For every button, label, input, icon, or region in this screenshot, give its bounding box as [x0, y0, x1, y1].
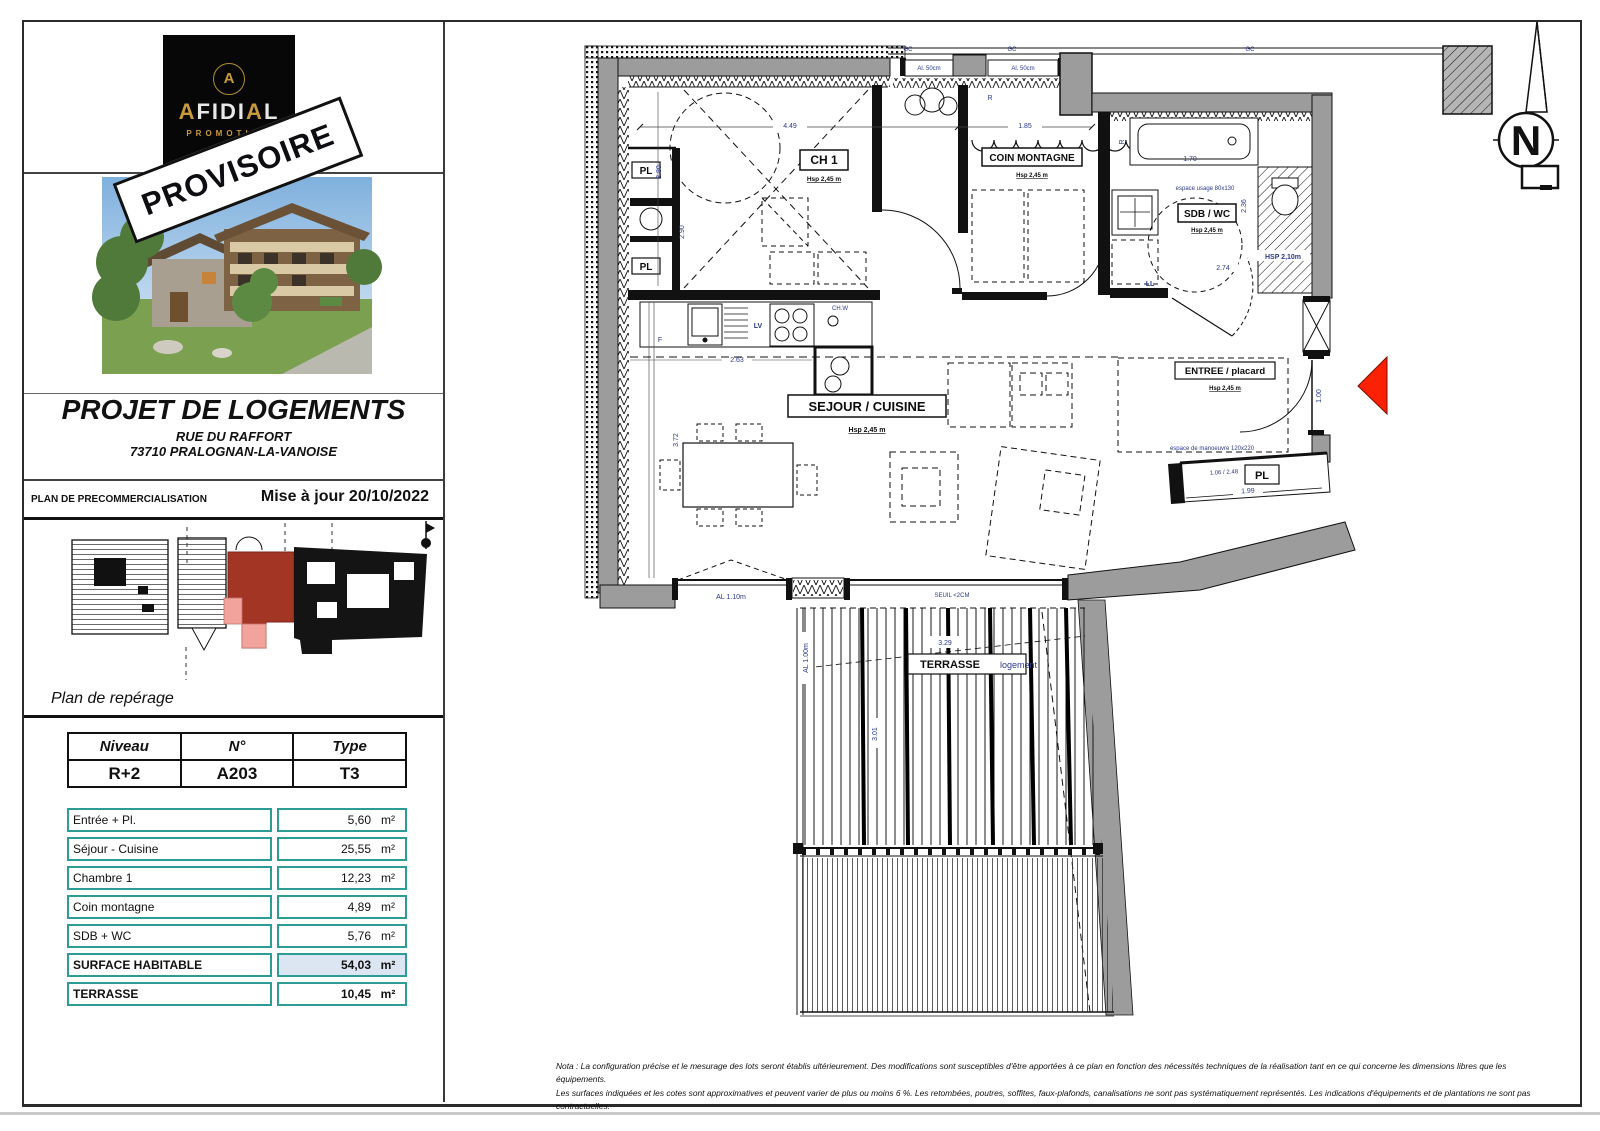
shower-sloped-zone: HSP 2,10m: [1256, 167, 1312, 293]
terrasse-sub-label: logement: [1000, 660, 1038, 670]
dim-280: 2.80: [656, 165, 663, 179]
fridge-label: F: [658, 337, 662, 344]
row-value: 5,76m²: [277, 924, 407, 948]
row-label: Chambre 1: [67, 866, 272, 890]
unit-table-header-row: Niveau N° Type: [68, 733, 406, 760]
terrace: 3.29 TERRASSE logement 3.01 AL 1.00m: [793, 608, 1114, 1016]
allege-110: AL 1.10m: [716, 594, 746, 601]
table-row: Chambre 1 12,23m²: [67, 866, 407, 890]
row-label: Entrée + Pl.: [67, 808, 272, 832]
entry-arrow-icon: [1358, 357, 1387, 414]
val-type: T3: [293, 760, 406, 787]
room-label-terrasse: TERRASSE: [920, 659, 980, 671]
disclaimer-line-2: Les surfaces indiquées et les cotes sont…: [556, 1087, 1532, 1114]
disclaimer: Nota : La configuration précise et le me…: [556, 1060, 1532, 1114]
room-label-pl: PL: [1255, 470, 1269, 482]
terrace-label: TERRASSE logement: [908, 654, 1038, 674]
photo-rock: [212, 348, 232, 358]
row-label: SDB + WC: [67, 924, 272, 948]
ceiling-height-label: Hsp 2,45 m: [849, 427, 886, 434]
table-row-terrasse: TERRASSE 10,45m²: [67, 982, 407, 1006]
bedroom-ch1: CH 1 Hsp 2,45 m: [670, 90, 960, 288]
gc-label: GC: [1008, 47, 1018, 53]
dim-199: 1.99: [1241, 488, 1255, 496]
usage-space-note: espace usage 80x130: [1176, 186, 1235, 192]
site-building-middle: [178, 538, 226, 650]
table-row: Séjour - Cuisine 25,55m²: [67, 837, 407, 861]
door-leaf: [1172, 298, 1232, 336]
row-value: 12,23m²: [277, 866, 407, 890]
row-label: SURFACE HABITABLE: [67, 953, 272, 977]
room-label-ch1: CH 1: [810, 153, 838, 167]
project-title: PROJET DE LOGEMENTS: [24, 394, 443, 426]
dim-170: 1.70: [1183, 156, 1197, 163]
title-block-column: A AFIDIAL PROMOTION: [24, 22, 445, 1102]
col-type: Type: [293, 733, 406, 760]
roof-window-swing: [670, 93, 780, 203]
door-arc: [1047, 238, 1105, 296]
door-arc: [882, 210, 960, 288]
room-label-entree: ENTREE / placard: [1185, 366, 1265, 377]
val-numero: A203: [181, 760, 294, 787]
row-value: 5,60m²: [277, 808, 407, 832]
dim-449: 4.49: [783, 123, 797, 130]
floor-plan: GC GC GC Al. 50cm Al. 50cm PL PL: [550, 15, 1600, 1045]
table-row: Coin montagne 4,89m²: [67, 895, 407, 919]
table-row-surface-habitable: SURFACE HABITABLE 54,03m²: [67, 953, 407, 977]
table-row: Entrée + Pl. 5,60m²: [67, 808, 407, 832]
dim-185: 1.85: [1018, 123, 1032, 130]
dim-290: 2.90: [679, 225, 686, 239]
site-plan: [24, 519, 443, 715]
entry-closet-pl: PL 1.06 / 2.48 1.99: [1168, 453, 1330, 504]
radiator-label: R: [1119, 139, 1126, 144]
ceiling-height-label: Hsp 2,45 m: [1016, 173, 1048, 179]
room-label-pl: PL: [640, 166, 653, 177]
balustrade-below: [800, 858, 1114, 1016]
wc-icon: [1272, 185, 1298, 215]
plan-type-label: PLAN DE PRECOMMERCIALISATION: [31, 494, 207, 505]
room-label-sejour: SEJOUR / CUISINE: [808, 399, 925, 414]
dim-chain-top: 4.49 1.85 2.80 2.90: [637, 92, 1095, 286]
surface-table: Entrée + Pl. 5,60m² Séjour - Cuisine 25,…: [67, 808, 407, 1011]
table-row: SDB + WC 5,76m²: [67, 924, 407, 948]
ceiling-height-label: Hsp 2,45 m: [807, 176, 842, 183]
site-north-flag-icon: [421, 521, 435, 549]
water-heater-label: CH.W: [832, 306, 848, 312]
north-compass-icon: N: [1493, 22, 1559, 190]
address-line-1: RUE DU RAFFORT: [24, 429, 443, 444]
site-unit-highlight: [224, 537, 294, 648]
radiator-label: R: [987, 95, 992, 102]
row-label: TERRASSE: [67, 982, 272, 1006]
update-date: Mise à jour 20/10/2022: [261, 488, 429, 506]
dim-329: 3.29: [938, 640, 952, 647]
plan-type-band: PLAN DE PRECOMMERCIALISATION Mise à jour…: [24, 482, 443, 517]
allege-dim: Al. 50cm: [1011, 66, 1034, 72]
dim-236: 2.36: [1241, 199, 1248, 213]
washing-machine-label: LL: [1146, 281, 1155, 288]
dishwasher-label: LV: [754, 323, 763, 330]
row-value: 54,03m²: [277, 953, 407, 977]
divider: [24, 715, 443, 718]
divider: [24, 479, 443, 481]
col-numero: N°: [181, 733, 294, 760]
dim-263: 2.63: [730, 357, 744, 364]
seuil-note: SEUIL <2CM: [935, 593, 970, 599]
logo-brand: AFIDIAL: [179, 99, 280, 125]
room-label-pl: PL: [640, 262, 653, 273]
unit-table-value-row: R+2 A203 T3: [68, 760, 406, 787]
plan-sheet: A AFIDIAL PROMOTION: [0, 0, 1600, 1131]
dim-301: 3.01: [872, 727, 879, 741]
project-title-block: PROJET DE LOGEMENTS RUE DU RAFFORT 73710…: [24, 394, 443, 459]
manoeuvre-note: espace de manoeuvre 120x220: [1170, 446, 1255, 452]
disclaimer-line-1: Nota : La configuration précise et le me…: [556, 1060, 1532, 1087]
photo-rock: [153, 340, 183, 354]
kitchen: F LV CH.W: [630, 302, 872, 395]
row-label: Coin montagne: [67, 895, 272, 919]
dim-372: 3.72: [673, 433, 680, 447]
corner-unit: [815, 347, 872, 395]
site-building-right: [294, 547, 427, 654]
row-label: Séjour - Cuisine: [67, 837, 272, 861]
col-niveau: Niveau: [68, 733, 181, 760]
address-line-2: 73710 PRALOGNAN-LA-VANOISE: [24, 444, 443, 459]
site-building-left: [72, 540, 168, 634]
gc-label: GC: [904, 47, 914, 53]
entrance: ENTREE / placard Hsp 2,45 m espace de ma…: [1118, 358, 1330, 504]
row-value: 10,45m²: [277, 982, 407, 1006]
allege-100: AL 1.00m: [803, 643, 810, 673]
project-address: RUE DU RAFFORT 73710 PRALOGNAN-LA-VANOIS…: [24, 429, 443, 459]
north-letter: N: [1511, 117, 1541, 164]
water-heater-icon: [640, 208, 662, 230]
reperage-caption: Plan de repérage: [51, 690, 174, 708]
bathroom-sdb-wc: 1.70 R espace usage 80x130 SDB / WC Hsp …: [1112, 118, 1312, 336]
ceiling-height-label: Hsp 2,45 m: [1191, 228, 1223, 234]
closet-pl-2: PL: [632, 258, 660, 274]
row-value: 25,55m²: [277, 837, 407, 861]
room-label-sdb: SDB / WC: [1184, 209, 1230, 220]
room-label-coin-montagne: COIN MONTAGNE: [989, 153, 1075, 164]
gc-label: GC: [1246, 47, 1256, 53]
duct-shaft: [1303, 296, 1330, 356]
row-value: 4,89m²: [277, 895, 407, 919]
lounge-furniture: [890, 363, 1100, 569]
hsp-210-label: HSP 2,10m: [1265, 254, 1301, 261]
unit-id-table: Niveau N° Type R+2 A203 T3: [67, 732, 407, 788]
dim-274: 2.74: [1216, 265, 1230, 272]
ceiling-height-label: Hsp 2,45 m: [1209, 386, 1241, 392]
val-niveau: R+2: [68, 760, 181, 787]
allege-dim: Al. 50cm: [917, 66, 940, 72]
neighbour-wall-chunk: [1443, 46, 1492, 114]
dim-100: 1.00: [1316, 389, 1323, 403]
logo-monogram-icon: A: [213, 63, 245, 95]
coat-hooks-cloud: [905, 88, 957, 115]
